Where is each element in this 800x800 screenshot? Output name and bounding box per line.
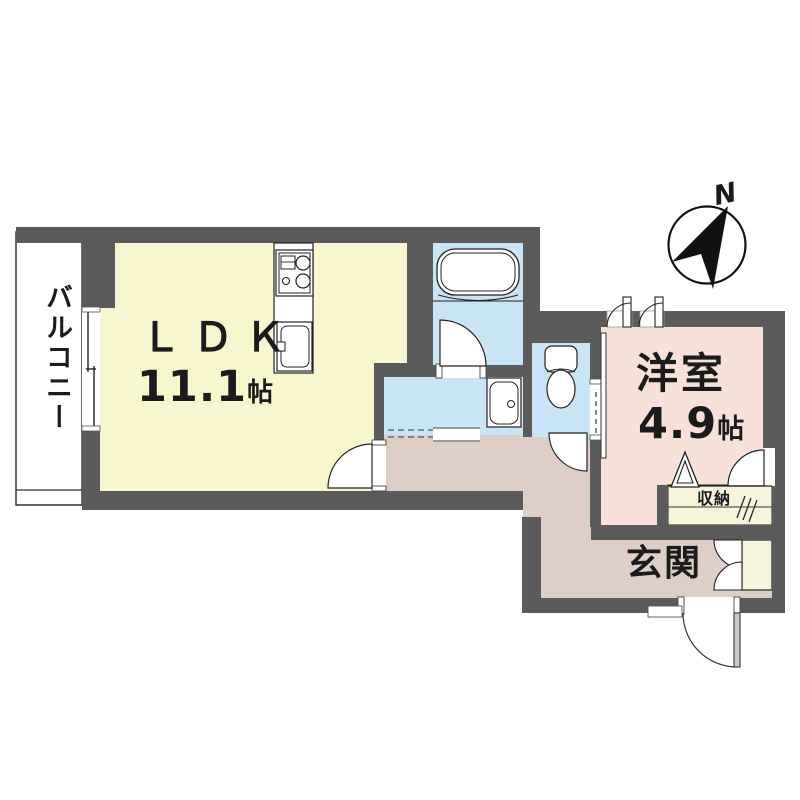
entrance-door (648, 597, 740, 667)
western-room-size-label: 4.9帖 (638, 403, 745, 446)
north-arrow-icon (669, 206, 746, 289)
wall-segment (82, 491, 523, 510)
entrance-door-leaf (734, 613, 740, 667)
wash-basin (487, 378, 521, 427)
balcony-label: バルコニー (43, 283, 70, 493)
stove (276, 250, 313, 296)
wall-segment (523, 327, 601, 343)
floor-plan-canvas: バルコニー ＬＤＫ 11.1帖 洋室 4.9帖 玄関 収納 N (0, 0, 800, 800)
wall-segment (772, 486, 785, 598)
wall-segment (657, 485, 668, 540)
wall-segment (374, 363, 433, 377)
western-room-label: 洋室 (636, 353, 726, 395)
toilet (545, 346, 577, 408)
ldk-size-label: 11.1帖 (137, 366, 274, 409)
western-room-size-value: 4.9 (638, 399, 717, 449)
wall-segment (16, 227, 540, 243)
wall-segment (738, 598, 785, 613)
wall-segment (523, 311, 607, 327)
entrance-label: 玄関 (626, 546, 702, 582)
storage-label: 収納 (697, 491, 731, 507)
wall-segment (664, 311, 763, 327)
wall-segment (523, 343, 532, 437)
western-room-size-unit: 帖 (717, 414, 745, 445)
wall-segment (590, 343, 601, 383)
shoe-cabinet (742, 540, 772, 590)
ldk-label: ＬＤＫ (141, 318, 297, 358)
wall-segment (523, 243, 540, 311)
wall-segment (484, 365, 523, 377)
balcony-window (82, 307, 100, 431)
ldk-size-value: 11.1 (137, 362, 247, 412)
entrance-step (648, 606, 682, 617)
wall-segment (763, 311, 785, 448)
bathtub (433, 249, 523, 301)
wall-segment (82, 427, 100, 491)
wall-segment (775, 448, 785, 486)
wall-segment (590, 437, 601, 527)
wall-segment (407, 243, 433, 365)
wall-segment (82, 243, 115, 308)
wall-segment (591, 525, 772, 540)
ldk-size-unit: 帖 (247, 378, 274, 408)
